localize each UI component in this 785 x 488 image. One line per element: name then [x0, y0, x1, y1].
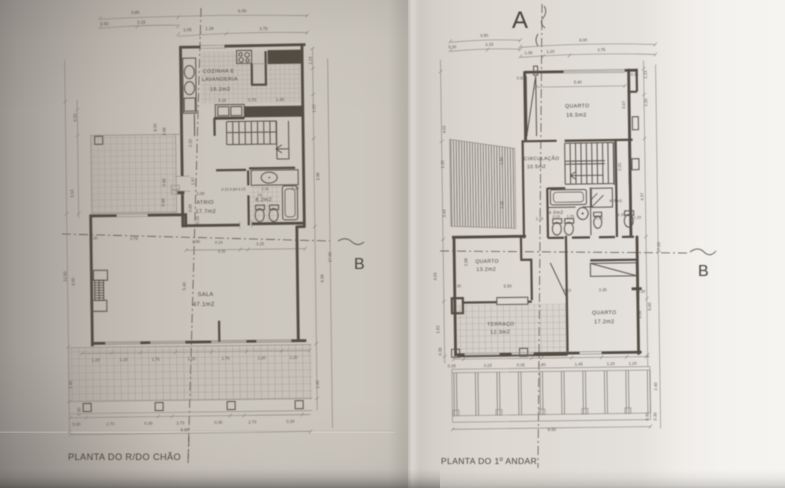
- svg-text:PLANTA DO 1º ANDAR: PLANTA DO 1º ANDAR: [441, 456, 537, 466]
- svg-text:17.00: 17.00: [656, 241, 661, 252]
- svg-text:3.18: 3.18: [218, 98, 227, 103]
- svg-text:17.7m2: 17.7m2: [196, 209, 216, 215]
- svg-text:8.2m2: 8.2m2: [255, 197, 271, 203]
- svg-text:3.15: 3.15: [485, 42, 494, 47]
- svg-text:5.50: 5.50: [504, 283, 513, 288]
- svg-text:3.14: 3.14: [69, 189, 74, 198]
- svg-text:3.50: 3.50: [480, 33, 489, 38]
- svg-text:0.30: 0.30: [448, 44, 457, 49]
- svg-text:+9: +9: [257, 193, 261, 197]
- svg-text:1.80: 1.80: [538, 362, 547, 367]
- svg-text:12.3m2: 12.3m2: [490, 329, 510, 335]
- svg-text:0.30: 0.30: [76, 407, 81, 416]
- svg-text:0.50: 0.50: [100, 21, 109, 26]
- svg-text:1.20: 1.20: [546, 49, 555, 54]
- svg-text:0.15 0.84 0.15: 0.15 0.84 0.15: [221, 187, 245, 191]
- svg-text:1.20: 1.20: [629, 361, 638, 366]
- svg-text:QUARTO: QUARTO: [565, 103, 589, 109]
- svg-text:0.15: 0.15: [553, 215, 560, 219]
- svg-text:2.40: 2.40: [653, 382, 658, 391]
- svg-text:13.2m2: 13.2m2: [476, 267, 496, 273]
- svg-text:ATRIO: ATRIO: [196, 200, 214, 206]
- svg-text:COZINHA E: COZINHA E: [203, 69, 235, 75]
- svg-text:16.5m2: 16.5m2: [566, 112, 586, 118]
- svg-text:3.78: 3.78: [130, 236, 139, 241]
- svg-text:17.2m2: 17.2m2: [594, 319, 614, 325]
- svg-text:0.75: 0.75: [248, 97, 257, 102]
- svg-text:1.62: 1.62: [435, 325, 440, 334]
- svg-text:2.20: 2.20: [188, 138, 193, 147]
- svg-text:10.5m2: 10.5m2: [527, 164, 546, 170]
- svg-text:0.35: 0.35: [448, 363, 457, 368]
- svg-text:1.20: 1.20: [643, 98, 648, 107]
- svg-text:2.73: 2.73: [248, 419, 257, 424]
- svg-text:1.20: 1.20: [92, 357, 101, 362]
- svg-text:1.20: 1.20: [188, 356, 197, 361]
- svg-text:B: B: [354, 256, 365, 273]
- svg-text:16.2m2: 16.2m2: [210, 87, 230, 93]
- svg-text:2.00: 2.00: [196, 191, 205, 196]
- svg-text:4.02: 4.02: [441, 125, 446, 134]
- svg-text:9.80: 9.80: [180, 427, 189, 432]
- svg-text:1.23: 1.23: [308, 56, 313, 65]
- svg-text:8.00: 8.00: [152, 123, 157, 132]
- svg-text:1.45: 1.45: [276, 97, 285, 102]
- svg-text:0.30: 0.30: [72, 422, 81, 427]
- svg-text:0.15: 0.15: [195, 215, 200, 224]
- svg-text:3.15: 3.15: [137, 20, 146, 25]
- svg-text:6.00: 6.00: [70, 277, 75, 286]
- svg-text:3.75: 3.75: [259, 26, 268, 31]
- svg-text:12.50: 12.50: [62, 271, 67, 282]
- svg-text:1.75: 1.75: [222, 356, 231, 361]
- svg-text:0.30: 0.30: [454, 284, 461, 288]
- svg-text:1.75: 1.75: [152, 357, 161, 362]
- svg-text:0.55: 0.55: [218, 250, 225, 254]
- svg-text:A: A: [512, 7, 528, 34]
- svg-text:6.00: 6.00: [647, 302, 652, 311]
- svg-text:0.30: 0.30: [144, 421, 153, 426]
- svg-text:1.20: 1.20: [440, 160, 445, 169]
- svg-text:0.24: 0.24: [215, 241, 222, 245]
- svg-text:1.05: 1.05: [183, 27, 192, 32]
- svg-text:2.88: 2.88: [463, 257, 468, 266]
- svg-text:1.25: 1.25: [567, 215, 574, 219]
- svg-text:1.29: 1.29: [205, 26, 214, 31]
- svg-text:2.73: 2.73: [106, 421, 115, 426]
- svg-text:4.03: 4.03: [432, 272, 437, 281]
- svg-text:1.45: 1.45: [575, 361, 584, 366]
- svg-text:1.23: 1.23: [643, 70, 648, 79]
- svg-text:SALA: SALA: [198, 292, 214, 298]
- svg-text:2.20: 2.20: [617, 162, 622, 171]
- svg-text:17.00: 17.00: [327, 251, 332, 262]
- svg-text:1.05: 1.05: [524, 50, 533, 55]
- svg-text:TERRAÇO: TERRAÇO: [487, 321, 514, 327]
- svg-text:B: B: [698, 263, 709, 280]
- svg-text:1.20: 1.20: [258, 355, 267, 360]
- svg-text:0.30: 0.30: [72, 113, 77, 122]
- svg-text:47.1m2: 47.1m2: [193, 302, 215, 308]
- svg-text:3.98: 3.98: [315, 172, 320, 181]
- svg-text:QUARTO: QUARTO: [475, 259, 499, 265]
- svg-text:0.30: 0.30: [631, 73, 638, 77]
- svg-text:0.93: 0.93: [161, 178, 166, 187]
- svg-text:QUARTO: QUARTO: [592, 310, 616, 316]
- svg-text:0.30: 0.30: [652, 412, 657, 421]
- svg-text:1.35: 1.35: [618, 213, 625, 217]
- svg-text:1.90: 1.90: [192, 239, 201, 244]
- svg-text:0.35: 0.35: [437, 347, 442, 356]
- svg-text:1.20: 1.20: [311, 104, 316, 113]
- svg-text:2.16: 2.16: [261, 187, 268, 191]
- svg-text:CIRCULAÇÃO: CIRCULAÇÃO: [524, 155, 560, 162]
- svg-text:6.39: 6.39: [319, 274, 324, 283]
- svg-text:1.90: 1.90: [499, 156, 504, 164]
- svg-text:3.75: 3.75: [597, 47, 606, 52]
- svg-text:1.57: 1.57: [190, 176, 195, 185]
- svg-text:2.35: 2.35: [499, 201, 504, 209]
- svg-text:3.25: 3.25: [256, 241, 265, 246]
- svg-text:6.00: 6.00: [238, 8, 247, 13]
- svg-text:LAVANDERIA: LAVANDERIA: [202, 76, 238, 82]
- svg-text:3.07: 3.07: [621, 100, 626, 109]
- svg-text:3.80: 3.80: [131, 10, 140, 15]
- svg-text:3.44: 3.44: [442, 209, 447, 218]
- svg-text:1.20: 1.20: [120, 357, 129, 362]
- svg-text:9.50: 9.50: [548, 427, 557, 432]
- svg-text:2.40: 2.40: [315, 380, 320, 389]
- svg-text:0.30: 0.30: [286, 419, 295, 424]
- svg-text:5.40: 5.40: [182, 281, 187, 290]
- svg-text:3.15: 3.15: [484, 363, 493, 368]
- svg-text:3.58: 3.58: [162, 127, 167, 136]
- svg-text:0.30: 0.30: [214, 420, 223, 425]
- svg-text:PLANTA DO R/DO CHÃO: PLANTA DO R/DO CHÃO: [68, 452, 181, 462]
- svg-text:0.30: 0.30: [517, 76, 524, 80]
- svg-text:2.73: 2.73: [176, 420, 185, 425]
- svg-text:5.40: 5.40: [574, 79, 583, 84]
- svg-text:0.98: 0.98: [160, 198, 165, 207]
- svg-text:0.35: 0.35: [517, 362, 526, 367]
- svg-text:0.86: 0.86: [188, 203, 193, 212]
- svg-text:1.20: 1.20: [634, 216, 641, 220]
- svg-text:4.37: 4.37: [639, 192, 644, 201]
- svg-text:6.00: 6.00: [579, 37, 588, 42]
- svg-text:1.20: 1.20: [536, 217, 543, 221]
- svg-text:1.20: 1.20: [290, 355, 299, 360]
- svg-text:1.20: 1.20: [607, 361, 616, 366]
- svg-text:3.35: 3.35: [599, 287, 608, 292]
